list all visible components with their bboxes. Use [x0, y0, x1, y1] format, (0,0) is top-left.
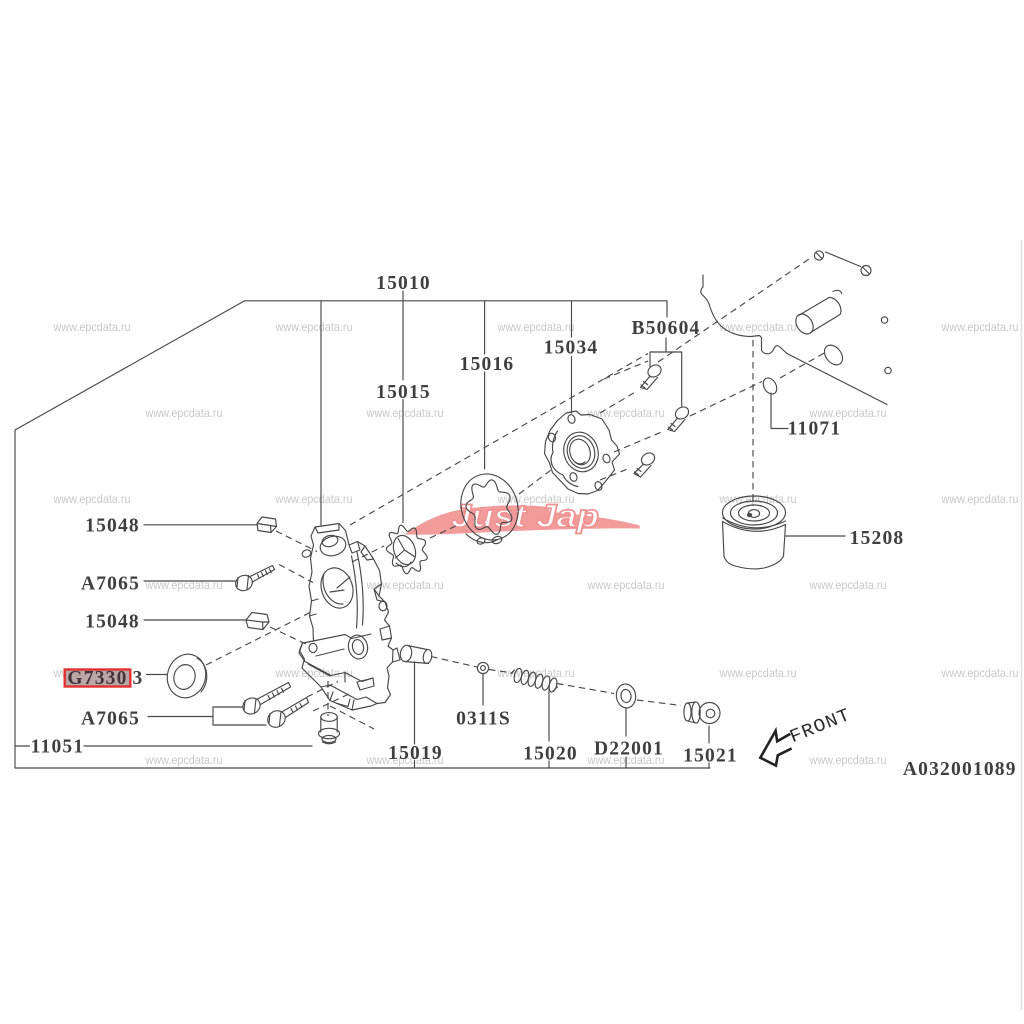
svg-text:www.epcdata.ru: www.epcdata.ru [275, 320, 353, 334]
svg-text:15020: 15020 [523, 744, 578, 765]
svg-text:D22001: D22001 [594, 739, 664, 760]
svg-text:www.epcdata.ru: www.epcdata.ru [941, 666, 1019, 680]
svg-text:15034: 15034 [544, 338, 599, 359]
svg-text:www.epcdata.ru: www.epcdata.ru [53, 320, 131, 334]
svg-text:0311S: 0311S [456, 709, 511, 730]
svg-text:www.epcdata.ru: www.epcdata.ru [497, 320, 575, 334]
svg-text:www.epcdata.ru: www.epcdata.ru [145, 406, 223, 420]
svg-text:B50604: B50604 [632, 318, 701, 339]
svg-text:15010: 15010 [376, 273, 431, 294]
svg-text:www.epcdata.ru: www.epcdata.ru [719, 666, 797, 680]
svg-text:A7065: A7065 [81, 574, 140, 595]
svg-text:www.epcdata.ru: www.epcdata.ru [941, 492, 1019, 506]
svg-text:15208: 15208 [850, 528, 905, 549]
svg-text:15019: 15019 [388, 743, 443, 764]
svg-text:www.epcdata.ru: www.epcdata.ru [809, 753, 887, 767]
svg-text:www.epcdata.ru: www.epcdata.ru [366, 578, 444, 592]
svg-text:www.epcdata.ru: www.epcdata.ru [809, 578, 887, 592]
svg-text:Just Jap: Just Jap [451, 498, 599, 534]
svg-text:3: 3 [133, 668, 144, 689]
svg-text:www.epcdata.ru: www.epcdata.ru [145, 578, 223, 592]
svg-text:11071: 11071 [788, 419, 842, 440]
svg-text:G7330: G7330 [67, 668, 127, 689]
svg-text:15021: 15021 [683, 746, 738, 767]
svg-text:15048: 15048 [85, 516, 140, 537]
svg-text:15016: 15016 [460, 354, 515, 375]
svg-text:www.epcdata.ru: www.epcdata.ru [53, 492, 131, 506]
svg-text:www.epcdata.ru: www.epcdata.ru [719, 492, 797, 506]
svg-text:15015: 15015 [376, 382, 431, 403]
svg-text:www.epcdata.ru: www.epcdata.ru [145, 753, 223, 767]
svg-text:www.epcdata.ru: www.epcdata.ru [587, 578, 665, 592]
svg-text:A7065: A7065 [81, 709, 140, 730]
svg-text:www.epcdata.ru: www.epcdata.ru [275, 492, 353, 506]
svg-text:A032001089: A032001089 [903, 759, 1017, 780]
svg-text:www.epcdata.ru: www.epcdata.ru [366, 406, 444, 420]
svg-text:11051: 11051 [31, 737, 85, 758]
svg-text:www.epcdata.ru: www.epcdata.ru [941, 320, 1019, 334]
svg-text:15048: 15048 [85, 612, 140, 633]
